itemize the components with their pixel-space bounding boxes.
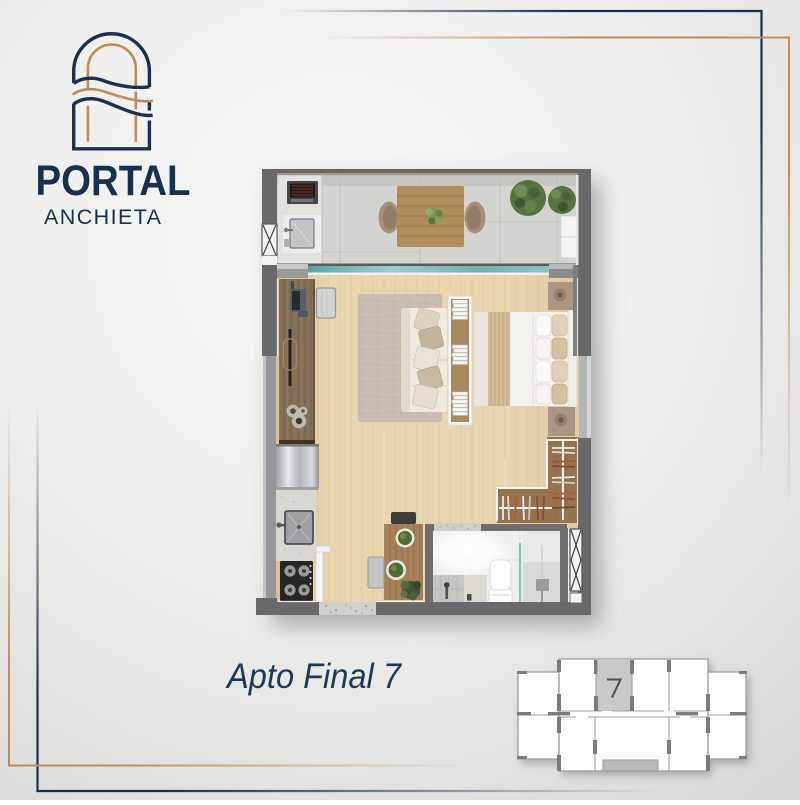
svg-text:PORTAL: PORTAL: [36, 158, 191, 205]
svg-text:Apto Final 7: Apto Final 7: [225, 657, 402, 696]
svg-text:ANCHIETA: ANCHIETA: [44, 205, 162, 229]
